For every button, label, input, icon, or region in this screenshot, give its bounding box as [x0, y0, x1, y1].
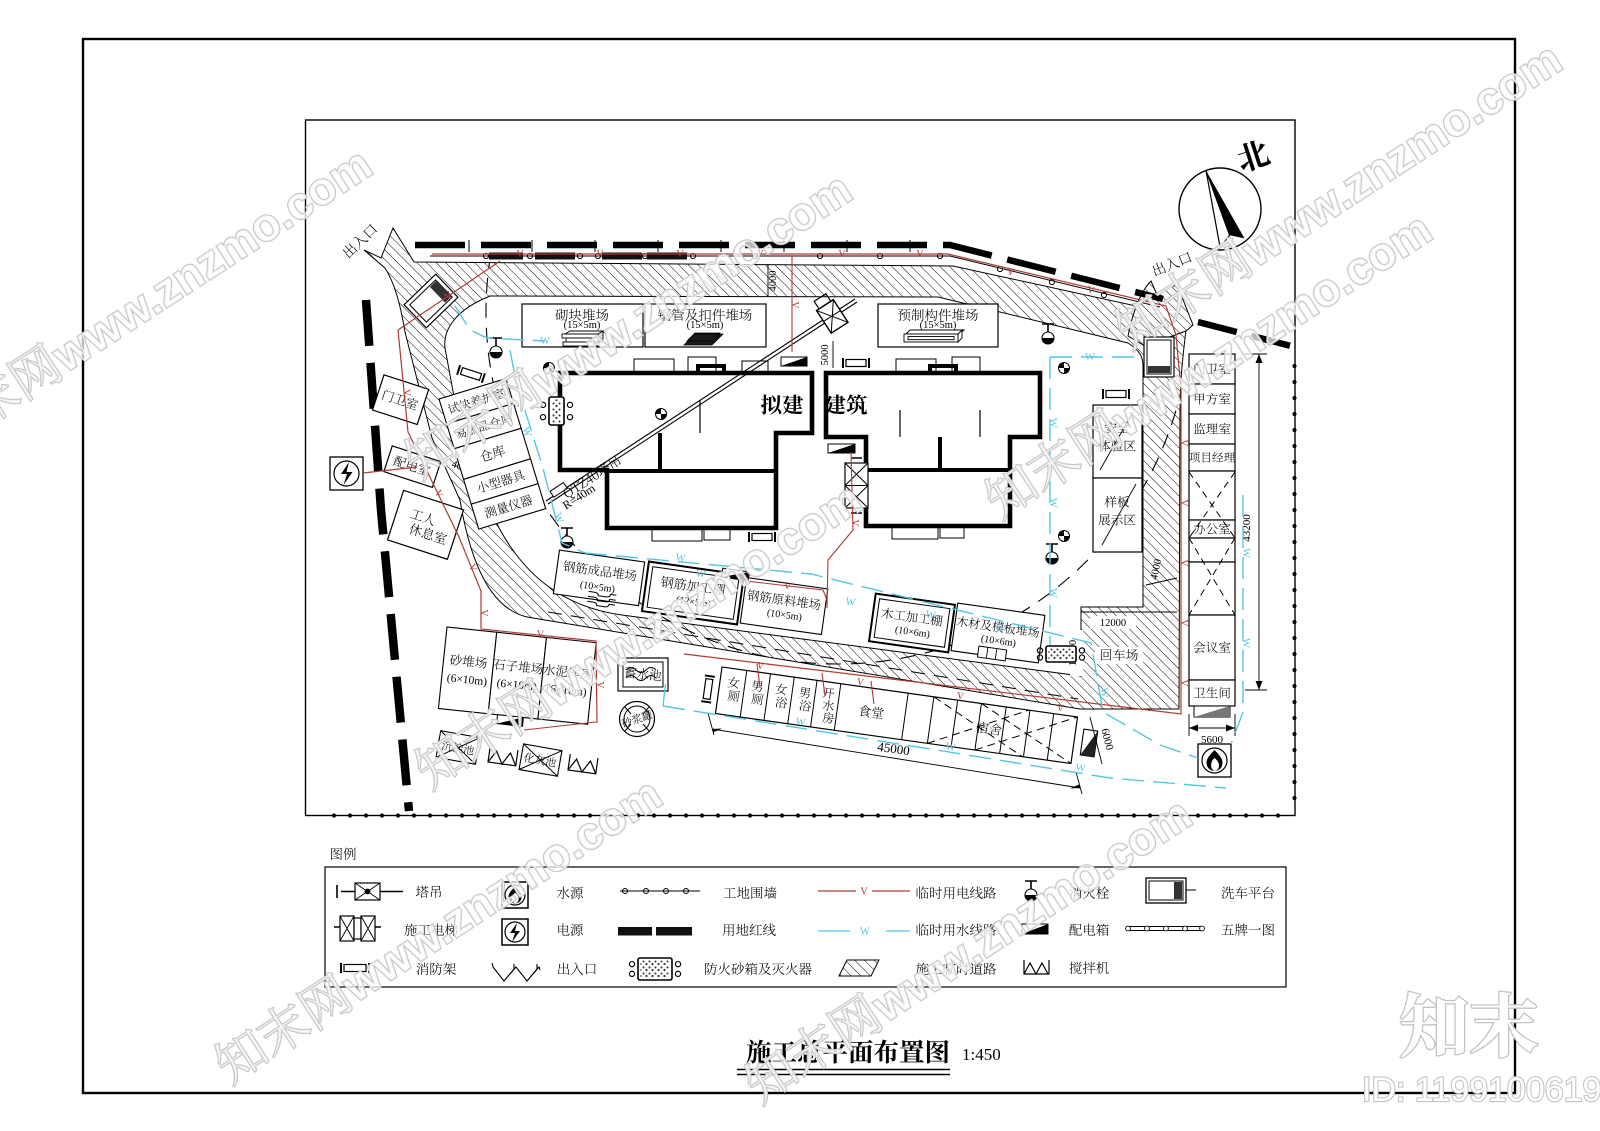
svg-text:W: W [995, 623, 1007, 636]
svg-text:ID: 1199100619: ID: 1199100619 [1362, 1071, 1600, 1109]
svg-text:V: V [516, 249, 524, 260]
svg-text:W: W [925, 609, 937, 622]
svg-text:W: W [1075, 762, 1087, 774]
svg-text:V: V [860, 887, 868, 898]
svg-text:V: V [1178, 439, 1189, 447]
svg-text:W: W [1047, 418, 1058, 428]
svg-text:W: W [1240, 638, 1251, 648]
svg-text:W: W [845, 596, 857, 609]
svg-text:V: V [596, 249, 604, 260]
svg-text:W: W [860, 927, 870, 938]
svg-text:W: W [1047, 588, 1058, 598]
svg-text:W: W [1085, 352, 1095, 363]
svg-text:V: V [1178, 499, 1189, 507]
svg-text:1:450: 1:450 [962, 1045, 1001, 1064]
svg-text:W: W [945, 741, 957, 753]
svg-text:(15×5m): (15×5m) [687, 320, 724, 331]
svg-text:W: W [1240, 548, 1251, 558]
svg-text:V: V [1178, 559, 1189, 567]
svg-text:5000: 5000 [820, 345, 831, 366]
svg-text:W: W [1047, 498, 1058, 508]
svg-text:12000: 12000 [1100, 618, 1126, 629]
svg-text:V: V [916, 249, 924, 260]
svg-text:W: W [675, 552, 687, 565]
svg-text:V: V [478, 609, 489, 617]
svg-text:V: V [1178, 619, 1189, 627]
svg-text:4000: 4000 [768, 271, 779, 292]
svg-text:V: V [838, 249, 846, 260]
svg-text:(15×5m): (15×5m) [920, 320, 957, 331]
svg-text:W: W [1098, 687, 1110, 698]
svg-text:W: W [795, 716, 807, 728]
svg-text:V: V [1178, 679, 1189, 687]
svg-text:V: V [789, 301, 800, 309]
